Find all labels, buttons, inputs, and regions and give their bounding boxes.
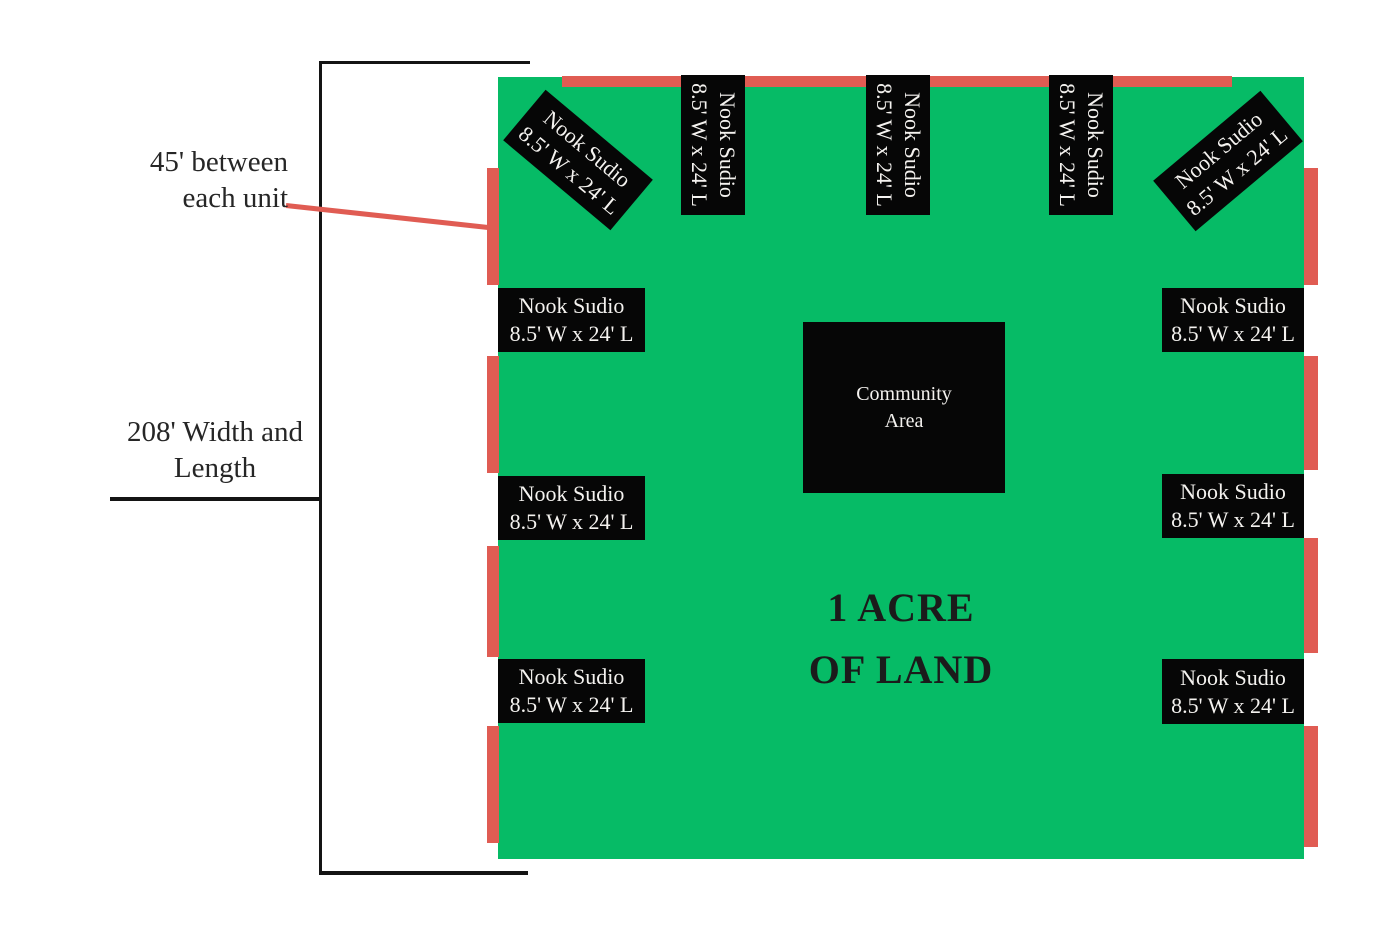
spacing-marker-left-4 — [487, 726, 499, 843]
unit-name: Nook Sudio — [1180, 664, 1286, 692]
unit-dimensions: 8.5' W x 24' L — [1171, 506, 1295, 534]
spacing-marker-right-3 — [1304, 538, 1318, 653]
unit-name: Nook Sudio — [713, 92, 741, 198]
unit-dimensions: 8.5' W x 24' L — [870, 83, 898, 207]
spacing-marker-right-1 — [1304, 168, 1318, 285]
unit-name: Nook Sudio — [1180, 292, 1286, 320]
unit-box-top-3: Nook Sudio 8.5' W x 24' L — [1049, 75, 1113, 215]
unit-dimensions: 8.5' W x 24' L — [510, 508, 634, 536]
unit-name: Nook Sudio — [519, 480, 625, 508]
spacing-annotation-line2: each unit — [80, 180, 288, 216]
unit-box-right-2: Nook Sudio 8.5' W x 24' L — [1162, 474, 1304, 538]
land-title: 1 ACRE OF LAND — [741, 577, 1061, 701]
unit-dimensions: 8.5' W x 24' L — [1171, 692, 1295, 720]
land-title-line1: 1 ACRE — [741, 577, 1061, 639]
dimension-annotation: 208' Width and Length — [95, 414, 335, 486]
unit-dimensions: 8.5' W x 24' L — [1171, 320, 1295, 348]
unit-name: Nook Sudio — [898, 92, 926, 198]
site-plan-diagram: Nook Sudio 8.5' W x 24' L Nook Sudio 8.5… — [0, 0, 1400, 933]
unit-name: Nook Sudio — [1180, 478, 1286, 506]
unit-dimensions: 8.5' W x 24' L — [1053, 83, 1081, 207]
unit-dimensions: 8.5' W x 24' L — [685, 83, 713, 207]
unit-name: Nook Sudio — [519, 663, 625, 691]
spacing-callout-line — [286, 203, 493, 230]
bracket-bottom-tick — [319, 871, 528, 875]
spacing-marker-left-3 — [487, 546, 499, 657]
dimension-annotation-line2: Length — [95, 450, 335, 486]
spacing-annotation-line1: 45' between — [80, 144, 288, 180]
community-area-label-line1: Community — [856, 381, 952, 408]
unit-box-top-1: Nook Sudio 8.5' W x 24' L — [681, 75, 745, 215]
unit-box-left-3: Nook Sudio 8.5' W x 24' L — [498, 659, 645, 723]
community-area-label-line2: Area — [885, 408, 924, 435]
unit-box-right-1: Nook Sudio 8.5' W x 24' L — [1162, 288, 1304, 352]
unit-name: Nook Sudio — [519, 292, 625, 320]
unit-box-left-2: Nook Sudio 8.5' W x 24' L — [498, 476, 645, 540]
unit-dimensions: 8.5' W x 24' L — [510, 320, 634, 348]
unit-name: Nook Sudio — [1081, 92, 1109, 198]
bracket-top-tick — [319, 61, 530, 64]
unit-box-top-2: Nook Sudio 8.5' W x 24' L — [866, 75, 930, 215]
spacing-annotation: 45' between each unit — [80, 144, 288, 216]
community-area-box: Community Area — [803, 322, 1005, 493]
spacing-marker-left-2 — [487, 356, 499, 473]
spacing-marker-right-4 — [1304, 726, 1318, 847]
unit-box-left-1: Nook Sudio 8.5' W x 24' L — [498, 288, 645, 352]
unit-box-right-3: Nook Sudio 8.5' W x 24' L — [1162, 659, 1304, 724]
dimension-underline — [110, 497, 320, 501]
land-title-line2: OF LAND — [741, 639, 1061, 701]
unit-dimensions: 8.5' W x 24' L — [510, 691, 634, 719]
spacing-marker-right-2 — [1304, 356, 1318, 470]
dimension-annotation-line1: 208' Width and — [95, 414, 335, 450]
